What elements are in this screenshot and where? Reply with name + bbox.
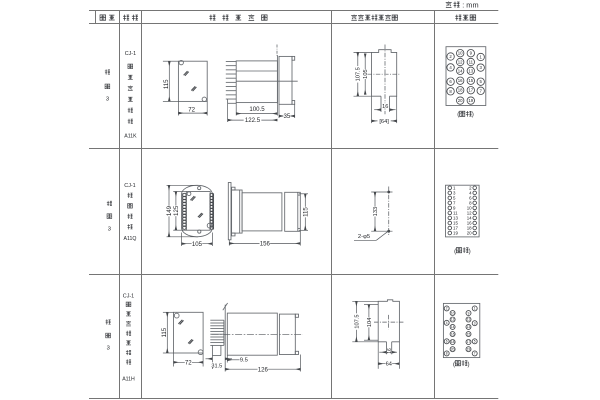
svg-text:35: 35 (283, 113, 290, 120)
svg-text:9.5: 9.5 (240, 358, 249, 364)
svg-text:20: 20 (467, 231, 472, 236)
svg-text:11: 11 (467, 318, 471, 322)
svg-text:3: 3 (107, 346, 110, 352)
svg-text:13: 13 (468, 68, 473, 73)
svg-text:14: 14 (451, 325, 455, 329)
svg-text:133: 133 (373, 207, 379, 217)
svg-text:31.5: 31.5 (211, 363, 222, 369)
svg-text:9: 9 (468, 311, 470, 315)
svg-text:19: 19 (468, 98, 473, 103)
svg-text:107.5: 107.5 (356, 67, 362, 81)
svg-text:A11H: A11H (122, 376, 135, 382)
svg-text:72: 72 (185, 359, 192, 366)
svg-text:9: 9 (470, 51, 473, 56)
svg-text:156: 156 (260, 240, 271, 247)
svg-text:3: 3 (480, 65, 483, 70)
svg-text:125: 125 (173, 205, 180, 216)
svg-text:8: 8 (449, 89, 452, 94)
svg-text:2-φ5: 2-φ5 (358, 234, 370, 240)
svg-text:8: 8 (446, 352, 448, 356)
svg-text:7: 7 (474, 352, 476, 356)
svg-text:64: 64 (386, 362, 392, 368)
svg-text::: : (462, 2, 464, 9)
svg-text:19: 19 (453, 231, 458, 236)
svg-text:115: 115 (161, 327, 168, 337)
svg-text:2: 2 (449, 54, 452, 59)
svg-text:20: 20 (451, 347, 455, 351)
svg-text:mm: mm (466, 0, 479, 9)
svg-text:115: 115 (163, 79, 170, 89)
svg-text:5: 5 (480, 79, 483, 84)
svg-text:105: 105 (192, 241, 203, 248)
svg-text:100.5: 100.5 (249, 106, 265, 113)
svg-text:17: 17 (468, 88, 473, 93)
svg-text:13: 13 (467, 325, 471, 329)
svg-text:12: 12 (451, 318, 455, 322)
svg-text:A11Q: A11Q (124, 236, 137, 242)
svg-text:14: 14 (458, 68, 463, 73)
svg-text:CJ-1: CJ-1 (124, 183, 135, 189)
svg-text:11: 11 (469, 60, 474, 65)
svg-text:1: 1 (480, 55, 483, 60)
svg-text:A11K: A11K (124, 134, 137, 140)
svg-text:16: 16 (387, 348, 393, 354)
svg-text:107.5: 107.5 (354, 314, 360, 328)
svg-text:16: 16 (458, 78, 463, 83)
svg-text:7: 7 (480, 88, 483, 93)
svg-text:CJ-1: CJ-1 (125, 51, 136, 57)
svg-text:2: 2 (446, 307, 448, 311)
svg-text:19: 19 (467, 347, 471, 351)
svg-text:115: 115 (302, 207, 309, 217)
svg-text:): ) (467, 361, 469, 368)
svg-text:122.5: 122.5 (245, 117, 261, 124)
svg-text:15: 15 (467, 332, 471, 336)
svg-text:4: 4 (449, 65, 452, 70)
svg-text:6: 6 (449, 79, 452, 84)
svg-text:4: 4 (446, 321, 448, 325)
svg-text:10: 10 (458, 51, 463, 56)
svg-text:3: 3 (106, 96, 109, 102)
svg-text:104: 104 (367, 318, 373, 328)
svg-text:15: 15 (468, 78, 473, 83)
svg-text:16: 16 (451, 332, 455, 336)
svg-text:72: 72 (188, 106, 195, 113)
svg-text:105: 105 (363, 69, 369, 79)
svg-text:5: 5 (474, 340, 476, 344)
svg-text:17: 17 (467, 340, 471, 344)
svg-text:3: 3 (108, 227, 111, 233)
svg-text:[64]: [64] (379, 119, 389, 125)
svg-text:20: 20 (458, 98, 463, 103)
svg-text:18: 18 (458, 88, 463, 93)
svg-text:3: 3 (474, 321, 476, 325)
svg-text:12: 12 (458, 60, 463, 65)
svg-text:1: 1 (474, 307, 476, 311)
svg-text:6: 6 (446, 340, 448, 344)
svg-text:10: 10 (451, 311, 455, 315)
svg-text:CJ-1: CJ-1 (123, 294, 134, 300)
svg-text:18: 18 (451, 340, 455, 344)
svg-text:): ) (472, 111, 474, 118)
svg-text:): ) (469, 248, 471, 255)
svg-text:126: 126 (258, 366, 269, 373)
svg-text:16: 16 (382, 104, 388, 110)
